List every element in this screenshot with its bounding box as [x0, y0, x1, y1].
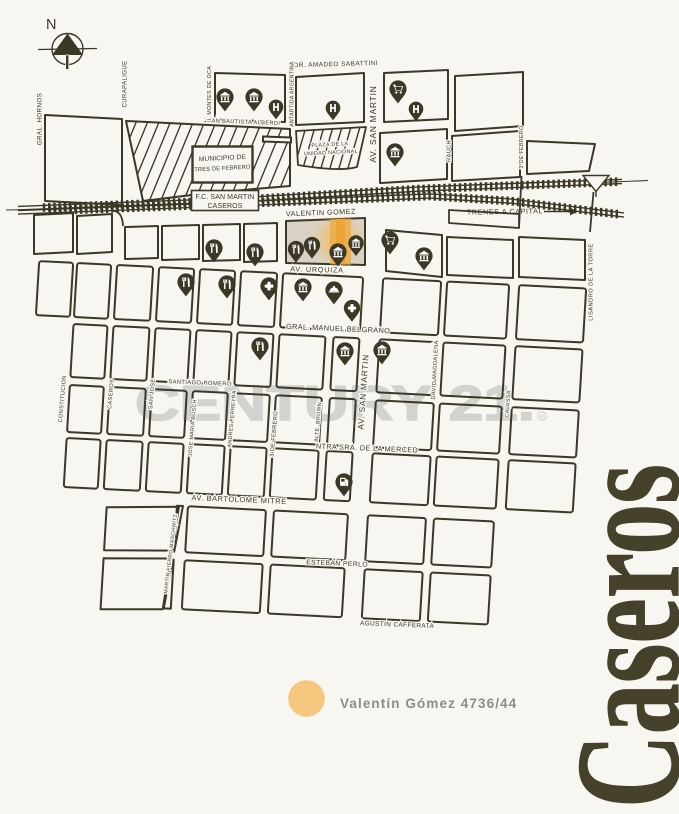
- svg-text:LISANDRO DE LA TORRE: LISANDRO DE LA TORRE: [589, 243, 595, 320]
- svg-text:GRAL. HORNOS: GRAL. HORNOS: [37, 93, 44, 145]
- svg-text:CASEROS: CASEROS: [208, 203, 243, 210]
- svg-text:3 DE FEBRERO: 3 DE FEBRERO: [519, 126, 525, 169]
- svg-text:AV. URQUIZA: AV. URQUIZA: [290, 264, 344, 274]
- svg-text:R: R: [540, 415, 544, 421]
- svg-text:AV. SAN MARTIN: AV. SAN MARTIN: [368, 85, 378, 162]
- svg-text:RAUCH: RAUCH: [447, 140, 453, 162]
- svg-text:ANTARTIDA ARGENTINA: ANTARTIDA ARGENTINA: [290, 61, 296, 127]
- svg-text:N: N: [46, 17, 56, 33]
- svg-text:I. MONTES DE OCA: I. MONTES DE OCA: [207, 66, 213, 120]
- svg-text:TRENES A CAPITAL: TRENES A CAPITAL: [467, 206, 543, 216]
- svg-text:CURAPALIGUE: CURAPALIGUE: [123, 61, 129, 108]
- svg-text:Caseros: Caseros: [546, 464, 679, 808]
- svg-text:Valentín Gómez 4736/44: Valentín Gómez 4736/44: [340, 696, 517, 711]
- svg-text:F.C. SAN MARTIN: F.C. SAN MARTIN: [196, 194, 255, 201]
